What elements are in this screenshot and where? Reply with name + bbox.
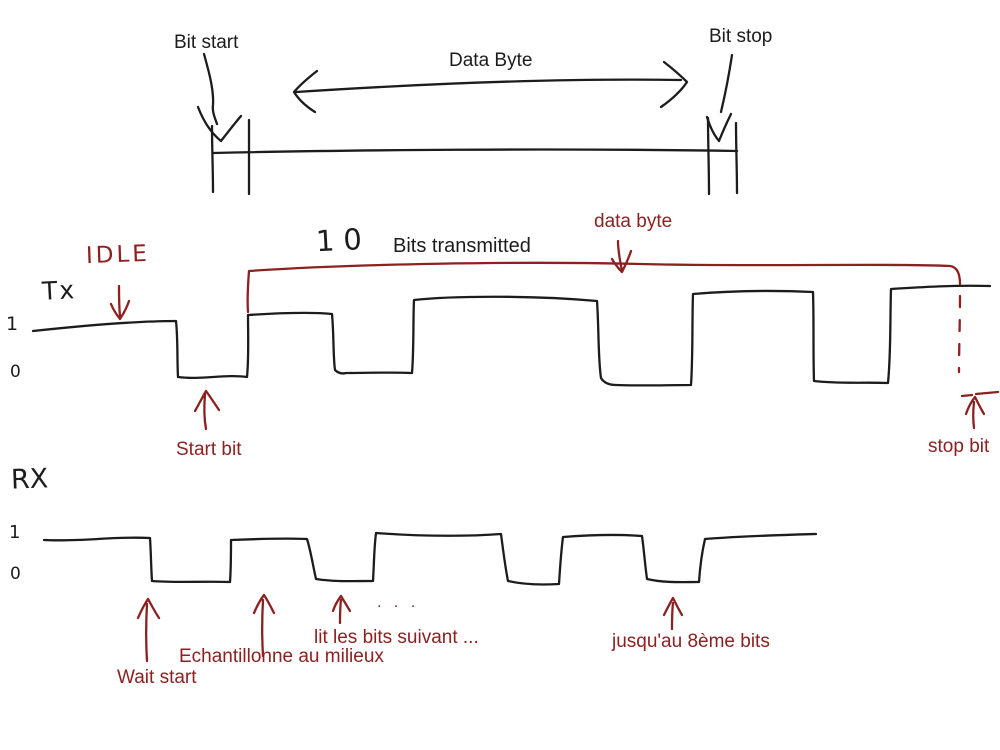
rx-signal-label: RX bbox=[10, 464, 48, 495]
data-byte-bracket bbox=[248, 263, 960, 312]
frame-tick-start-left bbox=[212, 126, 213, 192]
ellipsis-label: . . . bbox=[377, 594, 419, 612]
bit-start-label: Bit start bbox=[174, 33, 238, 54]
sketch-canvas bbox=[0, 0, 1000, 750]
wait-start-arrow bbox=[138, 599, 159, 661]
tx-level-high-label: 1 bbox=[6, 314, 18, 335]
rx-waveform bbox=[44, 533, 816, 585]
wait-start-label: Wait start bbox=[117, 668, 197, 689]
read-next-bits-label: lit les bits suivant ... bbox=[314, 628, 479, 649]
bit-stop-arrow bbox=[707, 55, 732, 141]
frame-tick-stop-right bbox=[736, 123, 737, 193]
bit-stop-label: Bit stop bbox=[709, 27, 772, 48]
stop-bit-label: stop bit bbox=[928, 437, 989, 458]
frame-tick-stop-left bbox=[708, 118, 709, 194]
bits-count-label: 10 bbox=[315, 224, 372, 259]
uart-timing-sketch: { "colors": { "ink": "#1c1c1c", "annotat… bbox=[0, 0, 1000, 750]
rx-level-low-label: 0 bbox=[10, 565, 21, 584]
idle-arrow bbox=[111, 286, 129, 319]
read-next-bits-arrow bbox=[333, 596, 350, 623]
idle-label: IDLE bbox=[86, 242, 151, 270]
bit-start-arrow bbox=[198, 54, 241, 141]
until-8th-bit-label: jusqu'au 8ème bits bbox=[612, 632, 770, 653]
data-byte-arrow bbox=[612, 241, 631, 272]
stop-bit-dashed-edge bbox=[959, 296, 960, 372]
data-byte-span-label: Data Byte bbox=[449, 51, 532, 72]
tx-level-low-label: 0 bbox=[10, 363, 21, 382]
sample-middle-label: Echantillonne au milieux bbox=[179, 647, 384, 668]
start-bit-arrow bbox=[195, 391, 219, 429]
tx-waveform bbox=[33, 286, 990, 386]
tx-signal-label: Tx bbox=[41, 276, 76, 305]
stop-bit-low-mark bbox=[962, 392, 998, 396]
bits-transmitted-label: Bits transmitted bbox=[393, 235, 531, 257]
until-8th-bit-arrow bbox=[664, 598, 682, 629]
rx-level-high-label: 1 bbox=[9, 523, 20, 543]
stop-bit-arrow bbox=[966, 397, 984, 428]
data-byte-annotation-label: data byte bbox=[594, 212, 672, 233]
start-bit-label: Start bit bbox=[176, 440, 241, 461]
frame-baseline bbox=[213, 150, 737, 153]
